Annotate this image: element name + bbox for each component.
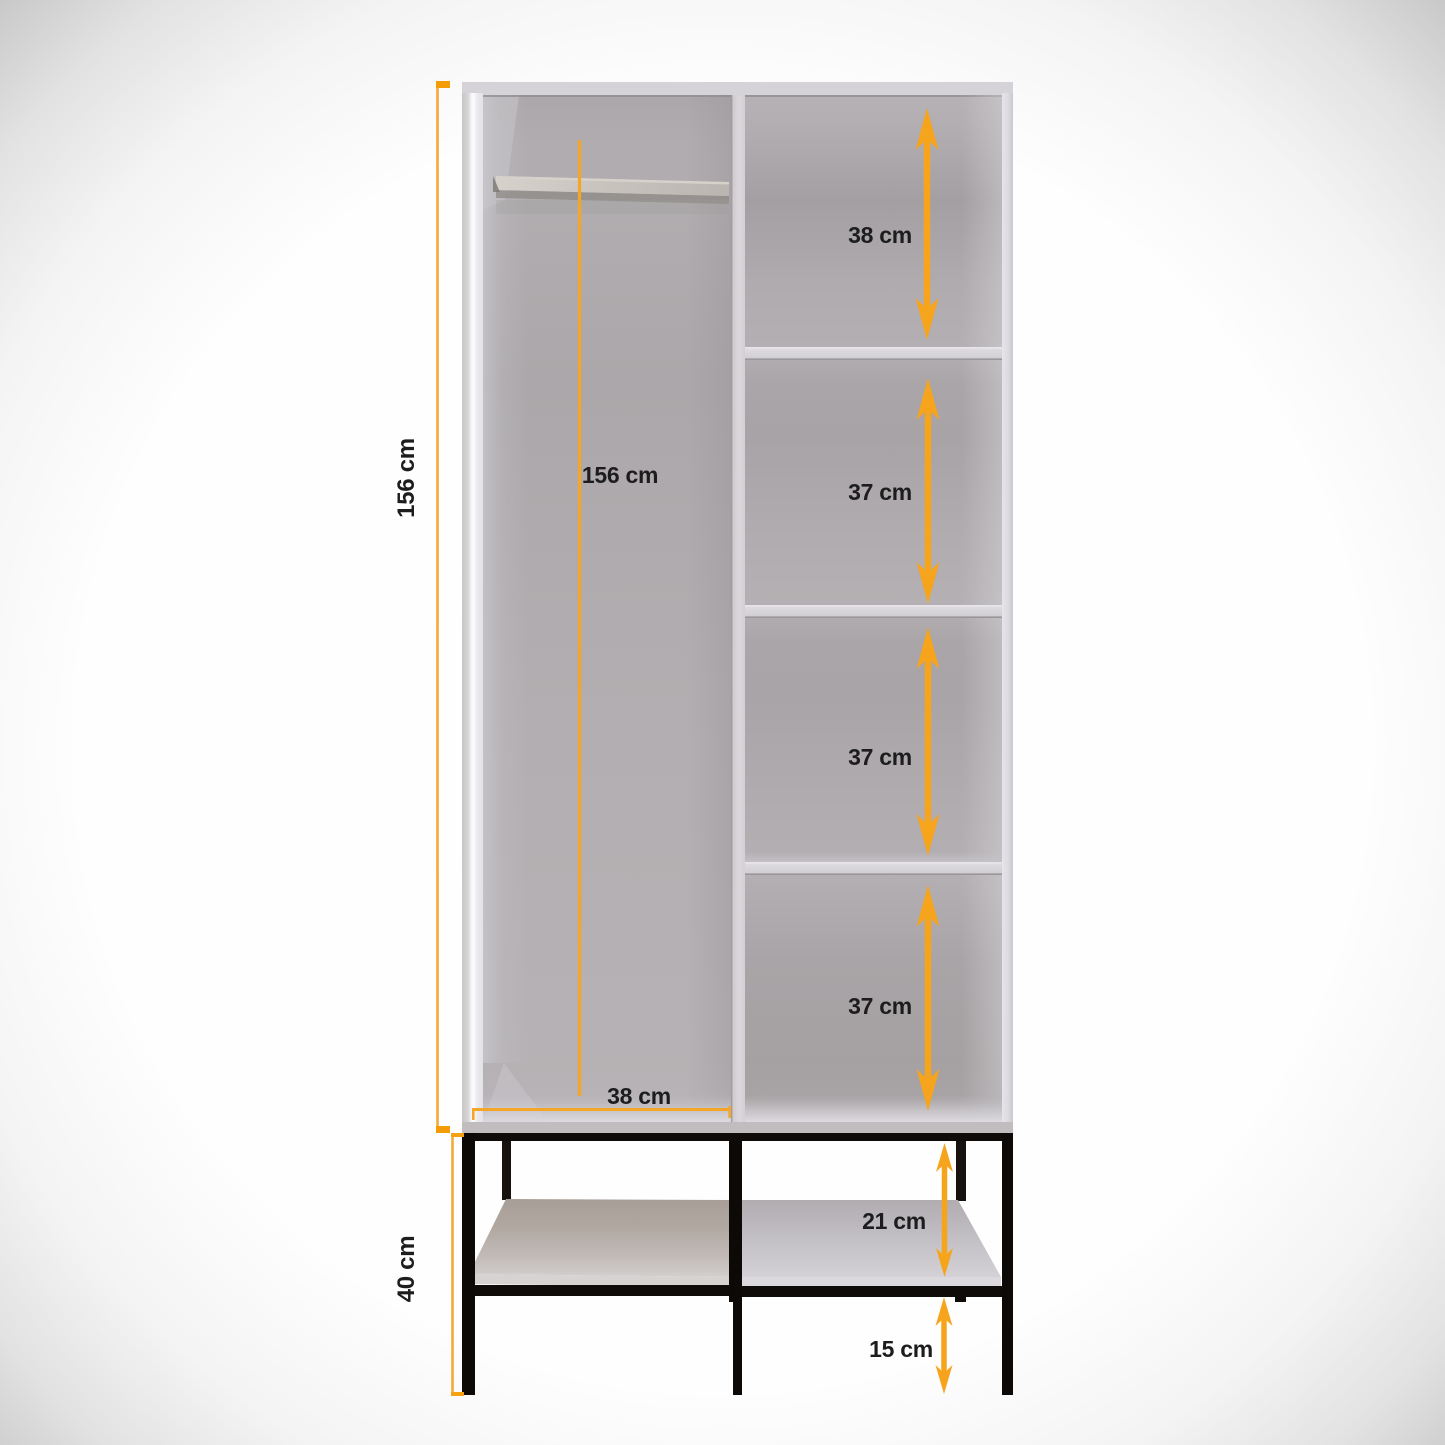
svg-text:40 cm: 40 cm <box>393 1236 420 1303</box>
svg-text:156 cm: 156 cm <box>582 462 658 488</box>
svg-text:21 cm: 21 cm <box>862 1208 926 1234</box>
svg-text:38 cm: 38 cm <box>607 1083 671 1109</box>
svg-text:37 cm: 37 cm <box>848 744 912 770</box>
svg-text:37 cm: 37 cm <box>848 993 912 1019</box>
svg-text:15 cm: 15 cm <box>869 1336 933 1362</box>
svg-text:37 cm: 37 cm <box>848 479 912 505</box>
svg-text:156 cm: 156 cm <box>393 438 420 518</box>
svg-text:38 cm: 38 cm <box>848 222 912 248</box>
